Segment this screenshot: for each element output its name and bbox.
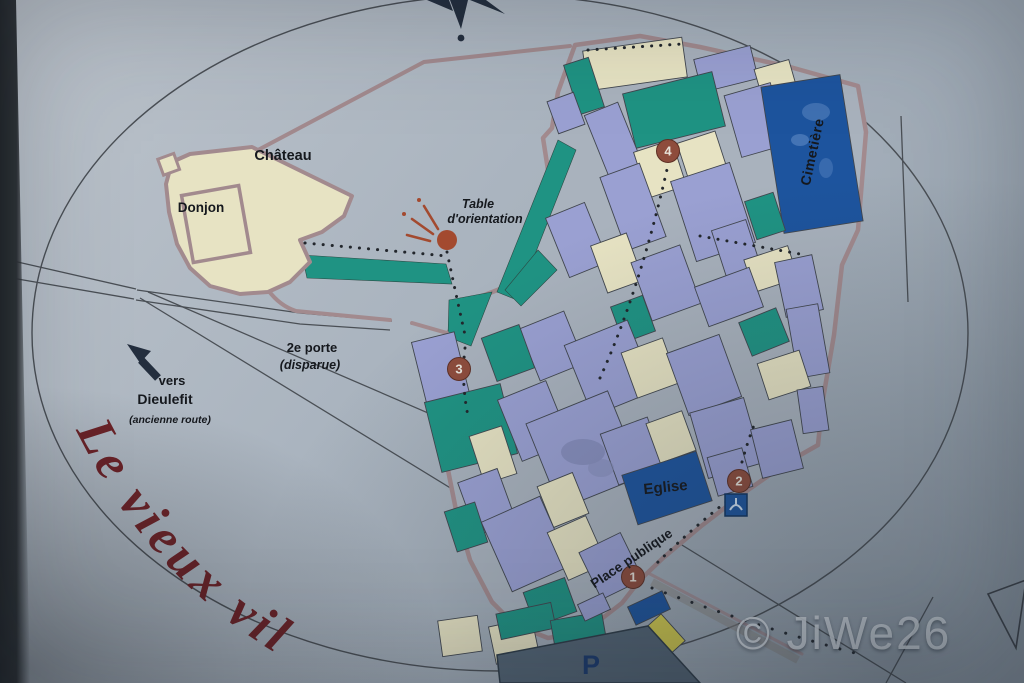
poi-marker-4: 4 — [657, 140, 680, 163]
wall-south-link-b — [412, 323, 447, 333]
porte-label-1: 2e porte — [287, 340, 338, 355]
sign-title-script: Le vieux vil — [65, 408, 304, 665]
building — [797, 386, 829, 433]
table-orientation-label-2: d'orientation — [447, 212, 523, 226]
poi-marker-number: 2 — [735, 474, 742, 489]
map-sign-photo: P — [0, 0, 1024, 683]
village-map: P — [0, 0, 1024, 683]
vers-dieulefit-label-2: Dieulefit — [137, 391, 193, 407]
chateau-tower-knob — [158, 153, 180, 175]
donjon-courtyard — [182, 185, 251, 262]
green-strip-porte — [302, 255, 452, 284]
watermark: © JiWe26 — [736, 606, 1016, 660]
vers-dieulefit-label-3: (ancienne route) — [129, 414, 211, 426]
fountain-icon — [725, 494, 747, 516]
road-east — [901, 116, 908, 302]
parking-label: P — [582, 650, 600, 680]
poi-marker-2: 2 — [728, 470, 751, 493]
poi-marker-3: 3 — [448, 358, 471, 381]
chateau-label: Château — [254, 148, 311, 164]
poi-marker-number: 3 — [455, 362, 462, 377]
table-orientation-label-1: Table — [462, 197, 494, 211]
poi-marker-number: 1 — [629, 570, 636, 585]
poi-marker-number: 4 — [664, 144, 672, 159]
viewpoint-dot — [437, 230, 457, 250]
compass-rose-icon — [427, 0, 505, 41]
wall-south-link-a — [268, 290, 390, 320]
building — [438, 615, 483, 656]
porte-label-2: (disparue) — [280, 358, 340, 372]
wall-north-link — [258, 46, 570, 150]
donjon-label: Donjon — [178, 200, 225, 215]
direction-arrow-icon — [127, 344, 158, 378]
vers-dieulefit-label-1: vers — [159, 373, 186, 388]
path-porte — [305, 243, 447, 256]
